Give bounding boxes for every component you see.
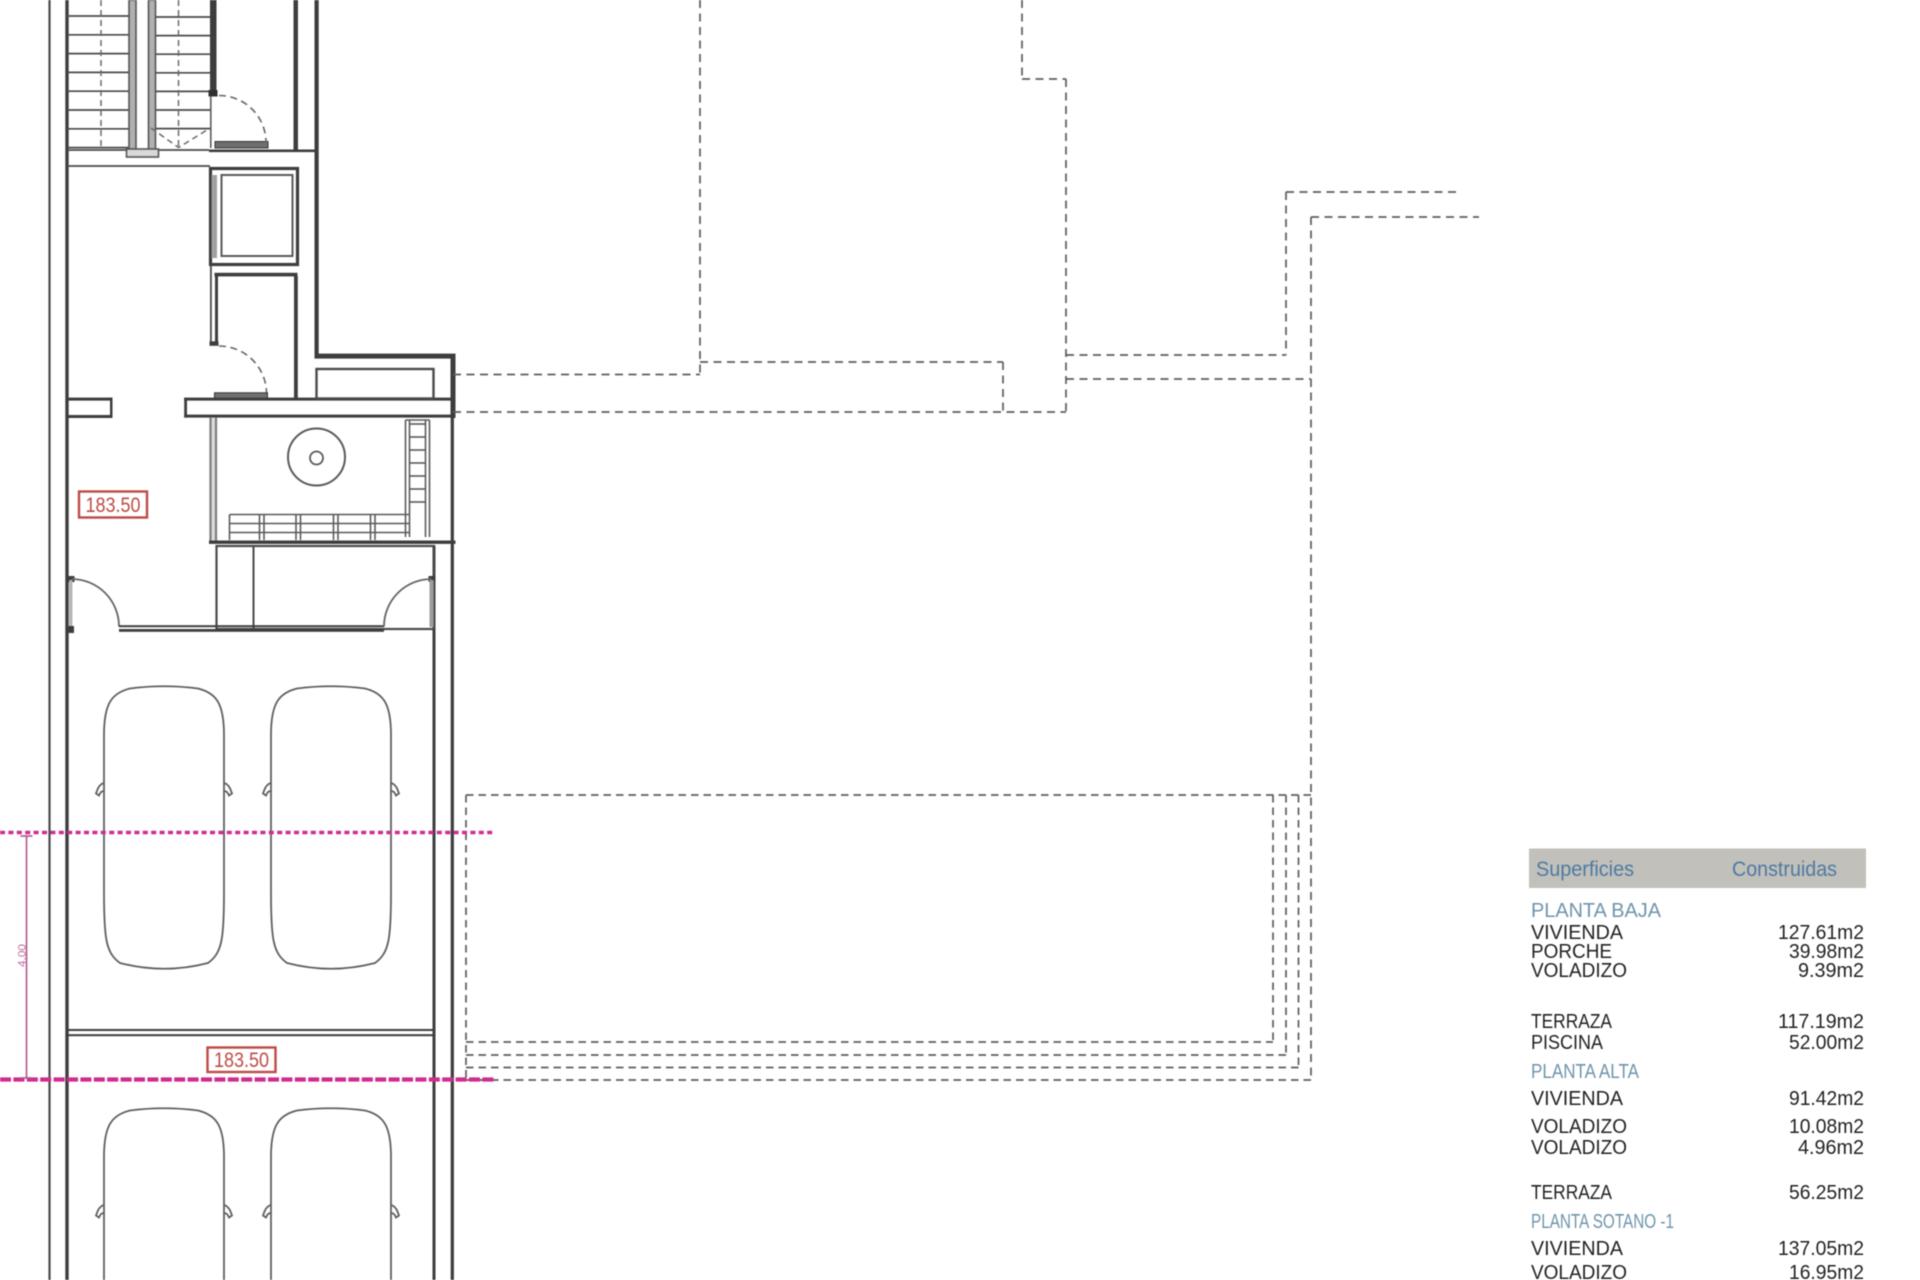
svg-text:PLANTA BAJA: PLANTA BAJA (1531, 900, 1662, 922)
svg-text:Superficies: Superficies (1536, 858, 1634, 881)
svg-text:117.19m2: 117.19m2 (1778, 1011, 1864, 1033)
svg-text:52.00m2: 52.00m2 (1789, 1032, 1864, 1054)
svg-text:PLANTA ALTA: PLANTA ALTA (1531, 1061, 1640, 1083)
svg-text:56.25m2: 56.25m2 (1789, 1182, 1864, 1204)
svg-text:137.05m2: 137.05m2 (1778, 1238, 1864, 1260)
svg-text:TERRAZA: TERRAZA (1531, 1182, 1613, 1204)
svg-text:VOLADIZO: VOLADIZO (1531, 1137, 1627, 1159)
svg-text:PISCINA: PISCINA (1531, 1032, 1604, 1054)
svg-text:183.50: 183.50 (86, 494, 141, 517)
svg-text:VOLADIZO: VOLADIZO (1531, 1262, 1627, 1280)
svg-text:VIVIENDA: VIVIENDA (1531, 1088, 1624, 1110)
svg-text:4.96m2: 4.96m2 (1798, 1137, 1864, 1159)
svg-text:9.39m2: 9.39m2 (1798, 960, 1864, 982)
svg-text:183.50: 183.50 (214, 1049, 269, 1072)
svg-text:VIVIENDA: VIVIENDA (1531, 1238, 1624, 1260)
svg-text:TERRAZA: TERRAZA (1531, 1011, 1613, 1033)
svg-text:4.00: 4.00 (17, 944, 29, 967)
svg-text:10.08m2: 10.08m2 (1789, 1116, 1864, 1138)
svg-text:16.95m2: 16.95m2 (1789, 1262, 1864, 1280)
svg-text:VOLADIZO: VOLADIZO (1531, 960, 1627, 982)
svg-text:VOLADIZO: VOLADIZO (1531, 1116, 1627, 1138)
svg-text:Construidas: Construidas (1732, 858, 1837, 881)
svg-text:PLANTA SOTANO -1: PLANTA SOTANO -1 (1531, 1211, 1674, 1233)
svg-text:91.42m2: 91.42m2 (1789, 1088, 1864, 1110)
